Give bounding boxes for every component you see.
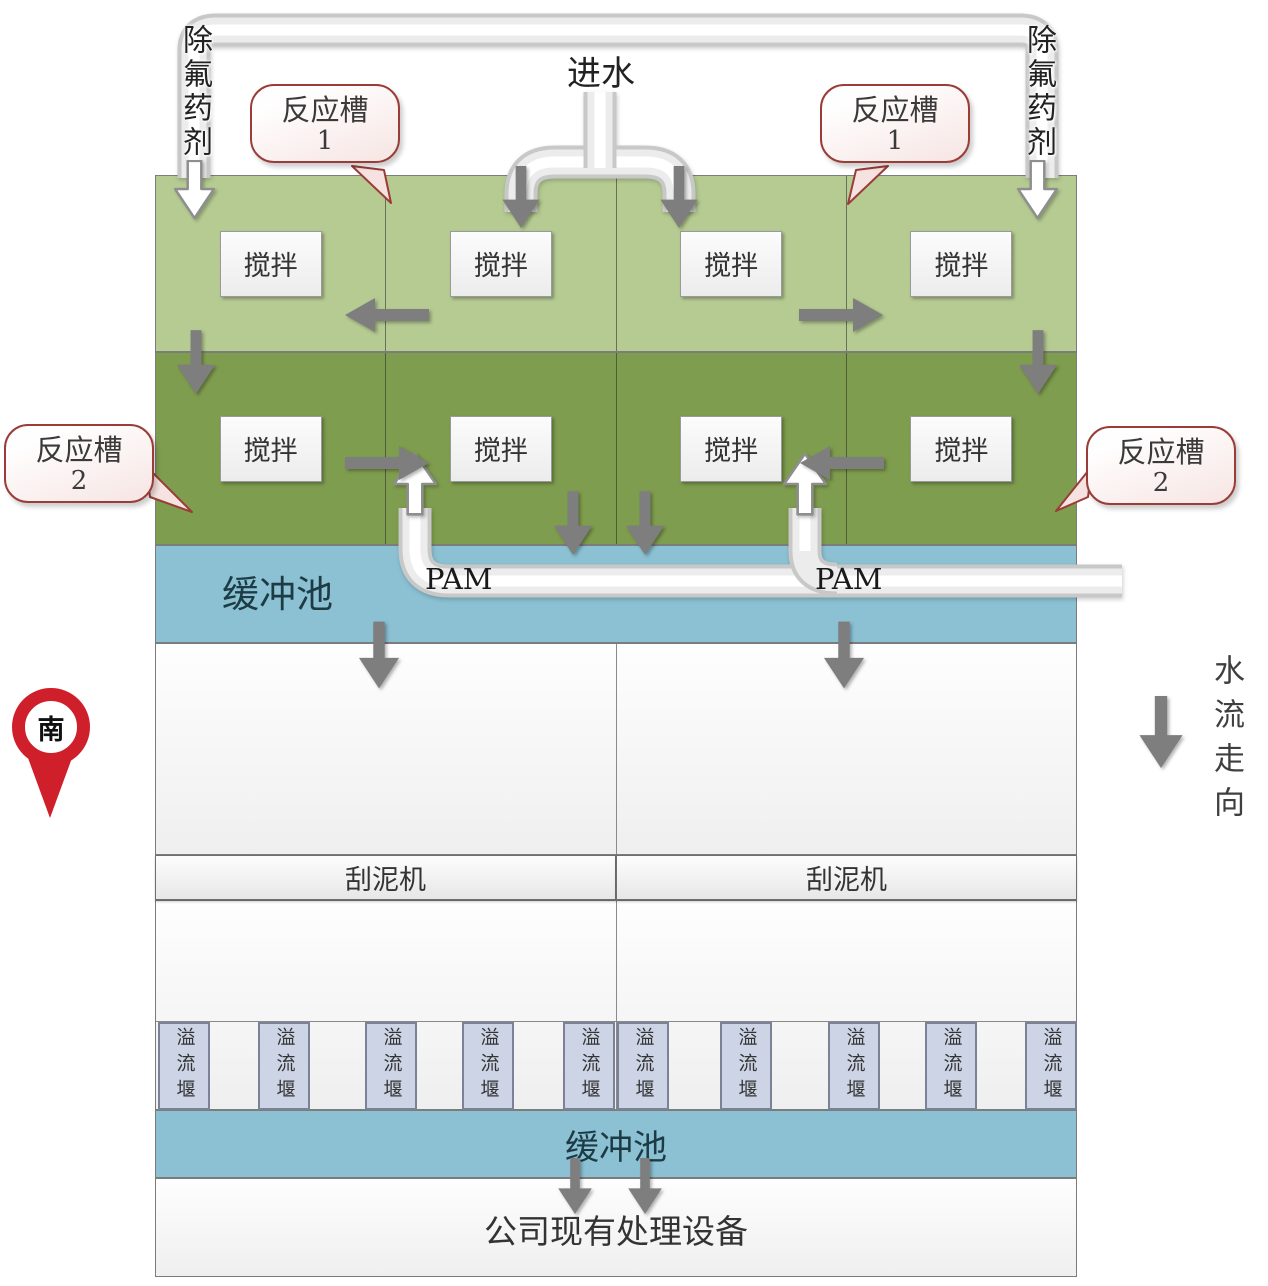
reaction-tank-row-2: 搅拌 搅拌 搅拌 搅拌 — [155, 352, 1077, 545]
overflow-weir: 溢流堰 — [158, 1022, 210, 1110]
stir-label: 搅拌 — [474, 429, 528, 468]
tank-cell: 搅拌 — [156, 176, 385, 351]
south-label: 南 — [38, 708, 65, 747]
callout-number: 1 — [822, 127, 968, 156]
sedimentation-basin-upper — [155, 643, 1077, 855]
weir-label: 溢流堰 — [634, 1027, 653, 1105]
scraper-label: 刮泥机 — [345, 858, 426, 897]
scraper-bar-right: 刮泥机 — [616, 855, 1077, 900]
callout-title: 反应槽 — [822, 94, 968, 127]
weir-label: 溢流堰 — [275, 1027, 294, 1105]
callout-number: 1 — [252, 127, 398, 156]
reaction-tank-row-1: 搅拌 搅拌 搅拌 搅拌 — [155, 175, 1077, 352]
stir-box: 搅拌 — [910, 231, 1012, 297]
pam-label-left: PAM — [425, 562, 493, 596]
stir-label: 搅拌 — [934, 429, 988, 468]
south-map-pin-icon: 南 — [12, 688, 90, 766]
overflow-weir: 溢流堰 — [258, 1022, 310, 1110]
map-pin-tail — [28, 758, 72, 818]
pam-label-right: PAM — [815, 562, 883, 596]
stir-box: 搅拌 — [680, 416, 782, 482]
defluoridation-agent-label-right: 除氟药剂 — [1020, 24, 1060, 160]
tank-cell: 搅拌 — [616, 176, 846, 351]
callout-number: 2 — [1088, 469, 1234, 498]
stir-label: 搅拌 — [244, 429, 298, 468]
weir-label: 溢流堰 — [737, 1027, 756, 1105]
weir-label: 溢流堰 — [1042, 1027, 1061, 1105]
tank-cell: 搅拌 — [156, 353, 385, 544]
overflow-weir: 溢流堰 — [462, 1022, 514, 1110]
existing-equipment-label: 公司现有处理设备 — [484, 1205, 748, 1253]
overflow-weir: 溢流堰 — [720, 1022, 772, 1110]
existing-equipment-box: 公司现有处理设备 — [155, 1178, 1077, 1277]
stir-box: 搅拌 — [220, 416, 322, 482]
stir-box: 搅拌 — [910, 416, 1012, 482]
stir-label: 搅拌 — [934, 244, 988, 283]
callout-title: 反应槽 — [1088, 436, 1234, 469]
weir-label: 溢流堰 — [942, 1027, 961, 1105]
callout-title: 反应槽 — [252, 94, 398, 127]
buffer-pool-band-bottom: 缓冲池 — [155, 1110, 1077, 1178]
stir-label: 搅拌 — [244, 244, 298, 283]
stir-box: 搅拌 — [450, 416, 552, 482]
weir-label: 溢流堰 — [175, 1027, 194, 1105]
callout-reaction-tank-2-left: 反应槽 2 — [4, 424, 154, 503]
overflow-weir: 溢流堰 — [365, 1022, 417, 1110]
callout-number: 2 — [6, 467, 152, 496]
callout-reaction-tank-2-right: 反应槽 2 — [1086, 426, 1236, 505]
tank-cell: 搅拌 — [616, 353, 846, 544]
stir-box: 搅拌 — [220, 231, 322, 297]
tank-cell: 搅拌 — [846, 176, 1076, 351]
stir-box: 搅拌 — [450, 231, 552, 297]
overflow-weir: 溢流堰 — [617, 1022, 669, 1110]
stir-label: 搅拌 — [474, 244, 528, 283]
tank-cell: 搅拌 — [385, 353, 615, 544]
buffer-pool-top-label: 缓冲池 — [222, 564, 333, 618]
flow-direction-note: 水流走向 — [1204, 654, 1249, 830]
basin-divider — [616, 644, 617, 854]
weir-label: 溢流堰 — [580, 1027, 599, 1105]
stir-label: 搅拌 — [704, 244, 758, 283]
defluoridation-agent-label-left: 除氟药剂 — [176, 24, 216, 160]
weir-label: 溢流堰 — [845, 1027, 864, 1105]
inlet-label: 进水 — [558, 46, 644, 95]
buffer-pool-bottom-label: 缓冲池 — [565, 1120, 667, 1169]
stir-box: 搅拌 — [680, 231, 782, 297]
scraper-label: 刮泥机 — [806, 858, 887, 897]
stir-label: 搅拌 — [704, 429, 758, 468]
weir-label: 溢流堰 — [382, 1027, 401, 1105]
callout-reaction-tank-1-right: 反应槽 1 — [820, 84, 970, 163]
weir-label: 溢流堰 — [479, 1027, 498, 1105]
scraper-bar-left: 刮泥机 — [155, 855, 616, 900]
overflow-weir: 溢流堰 — [1025, 1022, 1077, 1110]
flow-direction-arrow-icon — [1139, 696, 1182, 768]
process-diagram: 搅拌 搅拌 搅拌 搅拌 搅拌 搅拌 搅拌 搅拌 缓冲池 刮泥机 刮泥机 溢流堰 … — [0, 0, 1268, 1286]
overflow-weir: 溢流堰 — [563, 1022, 615, 1110]
callout-reaction-tank-1-left: 反应槽 1 — [250, 84, 400, 163]
overflow-weir: 溢流堰 — [828, 1022, 880, 1110]
tank-cell: 搅拌 — [385, 176, 615, 351]
tank-cell: 搅拌 — [846, 353, 1076, 544]
overflow-weir: 溢流堰 — [925, 1022, 977, 1110]
callout-title: 反应槽 — [6, 434, 152, 467]
